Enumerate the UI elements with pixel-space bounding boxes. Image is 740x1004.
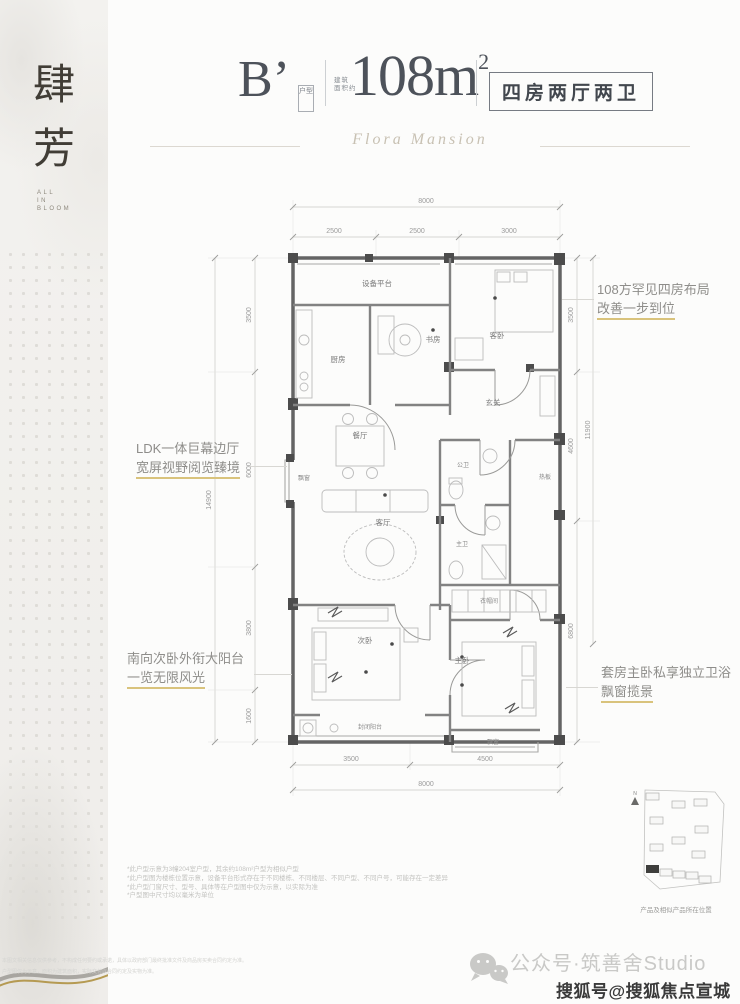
sidebar-marble-strip: 肆 芳 ALL IN BLOOM: [0, 0, 108, 1004]
tiny-disclaimer-2: 户型图仅为示意，面积为建筑面积，实际交付以合同约定及实物为准。: [2, 968, 547, 975]
wechat-icon: [468, 950, 508, 984]
extension-lines: [208, 200, 600, 796]
svg-text:8000: 8000: [418, 781, 434, 788]
fine-print-notes: *此户型示意为3幢204室户型，其余约108m²户型为相似户型 *此户型图为楼栋…: [127, 866, 448, 901]
wall-pillars: [286, 253, 565, 745]
annotation-left-bottom: 南向次卧外衔大阳台 一览无限风光: [127, 651, 244, 689]
room-label-master-bath: 主卫: [456, 540, 468, 548]
svg-text:4600: 4600: [568, 438, 575, 454]
unit-name: B’: [238, 50, 290, 109]
room-label-equipment: 设备平台: [362, 278, 392, 288]
area-superscript: 2: [478, 49, 489, 74]
area-value: 108m: [350, 43, 478, 108]
panel-symbols: [328, 607, 519, 713]
site-plan-map: N: [612, 772, 740, 904]
subject-building: [646, 865, 659, 873]
svg-text:2500: 2500: [326, 228, 342, 235]
brand-tagline: ALL IN BLOOM: [37, 189, 71, 213]
note-line-2: *此户型图为楼栋位置示意，设备平台形式存在于不同楼栋、不同楼层、不同户型、不同户…: [127, 875, 448, 884]
annotation-line: 108方罕见四房布局: [597, 282, 710, 298]
brand-char-1: 肆: [30, 62, 78, 110]
svg-text:14900: 14900: [206, 490, 213, 510]
bay-windows: [285, 264, 552, 752]
tagline-line-2: IN: [37, 197, 71, 205]
room-label-bay-window-bottom: 飘窗: [487, 738, 499, 746]
sohu-watermark: 搜狐号@搜狐焦点宣城站: [556, 977, 740, 1004]
wechat-watermark: 公众号·筑善舍Studio: [510, 947, 706, 976]
room-label-foyer: 玄关: [486, 397, 501, 407]
svg-text:3800: 3800: [246, 620, 253, 636]
note-line-4: *户型图中尺寸均以毫米为单位: [127, 892, 448, 901]
script-rule-right: [540, 146, 690, 147]
annotation-highlight: 一览无限风光: [127, 670, 205, 689]
svg-text:11900: 11900: [585, 420, 592, 439]
leader-line: [566, 687, 598, 688]
interior-walls: [293, 258, 560, 742]
leader-line: [249, 466, 287, 467]
annotation-line: LDK一体巨幕边厅: [136, 441, 240, 457]
room-label-study: 书房: [426, 334, 441, 344]
annotation-line: 南向次卧外衔大阳台: [127, 651, 244, 667]
tiny-disclaimer-1: 本图文相关信息仅供参考，不构成任何要约或承诺，具体以政府部门最终批准文件及商品房…: [2, 957, 547, 964]
north-arrow-icon: N: [631, 791, 639, 805]
note-line-1: *此户型示意为3幢204室户型，其余约108m²户型为相似户型: [127, 866, 448, 875]
script-rule-left: [150, 146, 300, 147]
dimension-ticks: [212, 204, 596, 793]
room-label-bay-window-left: 飘窗: [298, 474, 310, 482]
svg-text:6000: 6000: [246, 462, 253, 478]
room-label-closet: 衣帽间: [480, 597, 498, 605]
annotation-left-mid: LDK一体巨幕边厅 宽屏视野阅览臻境: [136, 441, 240, 479]
tagline-line-1: ALL: [37, 189, 71, 197]
annotation-highlight: 飘窗揽景: [601, 684, 653, 703]
svg-text:N: N: [633, 791, 637, 797]
svg-text:8000: 8000: [418, 198, 434, 205]
room-label-dining: 餐厅: [353, 431, 368, 440]
header-divider-2: [476, 60, 477, 106]
room-label-guest-bedroom: 客卧: [490, 330, 505, 340]
room-label-living: 客厅: [376, 517, 391, 527]
poster-page: 肆 芳 ALL IN BLOOM B’ 户型 建筑 面积约 108m2 四房两厅…: [0, 0, 740, 1004]
svg-text:3000: 3000: [501, 228, 517, 235]
svg-text:4500: 4500: [477, 756, 493, 763]
layout-summary-box: 四房两厅两卫: [489, 72, 653, 111]
room-label-second-bedroom: 次卧: [358, 635, 373, 645]
svg-text:6800: 6800: [568, 623, 575, 639]
svg-text:3500: 3500: [246, 307, 253, 323]
annotation-line: 套房主卧私享独立卫浴: [601, 665, 731, 681]
dot-pattern: [4, 248, 104, 924]
svg-text:2500: 2500: [409, 228, 425, 235]
sitemap-caption: 产品及相似产品所在位置: [612, 904, 740, 914]
svg-text:3500: 3500: [568, 307, 575, 323]
header-divider-1: [325, 60, 326, 106]
annotation-right-bottom: 套房主卧私享独立卫浴 飘窗揽景: [601, 665, 731, 703]
script-title: Flora Mansion: [300, 131, 540, 149]
leader-line: [254, 674, 292, 675]
annotation-right-top: 108方罕见四房布局 改善一步到位: [597, 282, 710, 320]
leader-line: [562, 299, 594, 300]
outer-walls: [293, 258, 560, 742]
tagline-line-3: BLOOM: [37, 205, 71, 213]
svg-text:3500: 3500: [343, 756, 359, 763]
room-label-shelf: 热板: [539, 473, 551, 481]
room-label-master-bedroom: 主卧: [455, 655, 470, 665]
annotation-highlight: 宽屏视野阅览臻境: [136, 460, 240, 479]
annotation-highlight: 改善一步到位: [597, 301, 675, 320]
room-label-public-bath: 公卫: [457, 462, 469, 469]
svg-text:1600: 1600: [246, 708, 253, 724]
room-label-kitchen: 厨房: [331, 354, 346, 364]
brand-char-2: 芳: [30, 126, 78, 174]
unit-tag-box: 户型: [298, 85, 314, 112]
room-label-enclosed-balcony: 封闭阳台: [358, 723, 382, 731]
area-number: 108m2: [350, 42, 489, 109]
door-arcs: [350, 370, 540, 695]
